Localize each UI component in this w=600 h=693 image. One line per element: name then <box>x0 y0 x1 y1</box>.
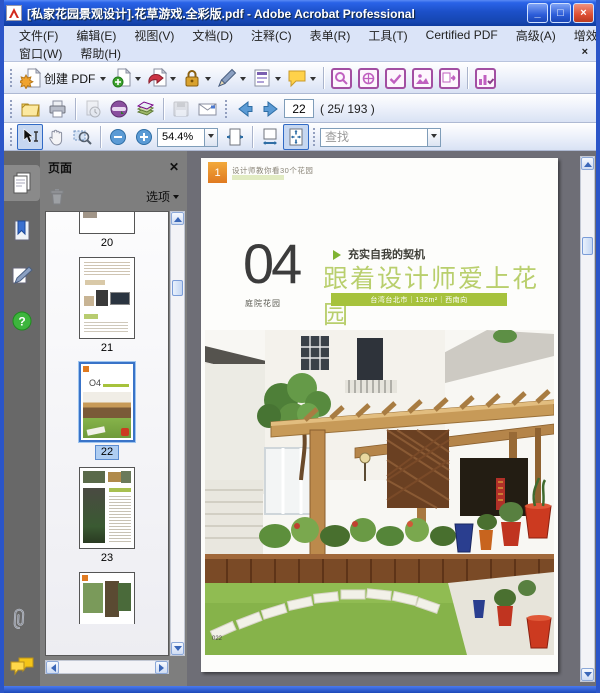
acrobat-app-icon <box>6 5 22 21</box>
chevron-down-icon <box>205 77 211 84</box>
chevron-down-icon <box>310 77 316 84</box>
previous-page-button[interactable] <box>232 96 258 122</box>
menu-help[interactable]: 帮助(H) <box>71 44 130 63</box>
form-icon <box>252 68 272 88</box>
chevron-down-icon <box>170 77 176 84</box>
envelope-icon <box>197 99 218 119</box>
minimize-button[interactable]: _ <box>527 3 548 23</box>
paper-stack-icon <box>135 99 156 119</box>
scroll-right-button[interactable] <box>155 661 168 674</box>
arrow-right-icon <box>159 664 168 672</box>
create-pdf-label: 创建 PDF <box>44 70 95 87</box>
svg-text:?: ? <box>18 315 25 329</box>
arrow-left-icon <box>235 99 255 119</box>
scroll-down-button[interactable] <box>581 668 594 681</box>
file-toolbar: ( 25/ 193 ) <box>4 94 596 123</box>
menu-view[interactable]: 视图(V) <box>125 26 183 45</box>
menubar: 文件(F) 编辑(E) 视图(V) 文档(D) 注释(C) 表单(R) 工具(T… <box>4 26 596 62</box>
fit-width-button[interactable] <box>222 124 248 150</box>
review-comment-button[interactable] <box>284 65 319 91</box>
hand-icon <box>46 127 66 147</box>
arrow-up-icon <box>174 213 182 222</box>
page-count-label: ( 25/ 193 ) <box>320 102 375 116</box>
pages-panel: 页面 ✕ 选项 20 <box>40 151 187 686</box>
chart-check-icon <box>475 68 496 89</box>
fit-page-icon <box>286 127 306 147</box>
globe-doc-icon <box>358 68 379 89</box>
fit-page-button[interactable] <box>283 124 309 150</box>
create-pdf-icon <box>20 67 42 89</box>
bookmarks-tab[interactable] <box>4 213 40 249</box>
toolbar-grip[interactable] <box>312 127 317 147</box>
signature-pen-icon <box>10 263 34 287</box>
open-folder-icon <box>20 99 41 119</box>
thumbnail-label: 23 <box>96 552 118 565</box>
next-page-button[interactable] <box>258 96 284 122</box>
thumbnail-page-21[interactable] <box>79 257 135 339</box>
pdf-page: 1 设计师教你看30个花园 04 庭院花园 充实自我的契机 跟着设计师爱上花园 … <box>201 158 558 672</box>
zoom-level-dropdown[interactable] <box>205 128 218 147</box>
view-toolbar: 54.4% <box>4 123 596 151</box>
menu-advanced[interactable]: 高级(A) <box>507 26 565 45</box>
toolbar-separator <box>252 126 253 148</box>
chapter-number: 04 <box>243 236 299 292</box>
menu-comments[interactable]: 注释(C) <box>242 26 301 45</box>
maximize-button[interactable]: □ <box>550 3 571 23</box>
speech-bubble-icon <box>287 68 307 88</box>
clock-doc-icon <box>83 99 103 119</box>
scroll-up-button[interactable] <box>581 157 594 170</box>
certified-pdf-button[interactable] <box>472 65 499 91</box>
pitstop-process-button[interactable] <box>436 65 463 91</box>
arrow-down-icon <box>584 672 592 681</box>
pitstop-action-button[interactable] <box>106 96 132 122</box>
zoom-in-button[interactable] <box>131 124 157 150</box>
arrow-left-icon <box>47 664 56 672</box>
trash-icon[interactable] <box>48 187 66 205</box>
zoom-tool-button[interactable] <box>69 124 96 150</box>
thumbnail-page-20[interactable] <box>79 212 135 234</box>
find-dropdown[interactable] <box>428 128 441 147</box>
menu-plugins[interactable]: 增效工具(P) <box>565 26 600 45</box>
forms-button[interactable] <box>249 65 284 91</box>
arrow-right-icon <box>261 99 281 119</box>
toolbar-close-icon[interactable]: × <box>582 46 588 58</box>
toolbar-separator <box>100 126 101 148</box>
acrobat-window: [私家花园景观设计].花草游戏.全彩版.pdf - Adobe Acrobat … <box>0 0 600 693</box>
thumbnail-label: 20 <box>96 237 118 250</box>
pages-icon <box>11 171 33 195</box>
thumbnail-list: 20 21 O4 <box>45 211 169 656</box>
organizer-button[interactable] <box>80 96 106 122</box>
chevron-down-icon <box>208 134 214 141</box>
document-vertical-scrollbar[interactable] <box>580 156 595 682</box>
toolbar-separator <box>75 98 76 120</box>
toolbar-separator <box>163 98 164 120</box>
toolbar-grip[interactable] <box>9 99 14 119</box>
email-button[interactable] <box>194 96 221 122</box>
comment-bubbles-icon <box>9 656 35 678</box>
toolbar-grip[interactable] <box>224 99 229 119</box>
page-header-subline <box>232 175 284 180</box>
sign-button[interactable] <box>214 65 249 91</box>
menu-window[interactable]: 窗口(W) <box>10 44 71 63</box>
scrollbar-thumb[interactable] <box>582 237 593 255</box>
fit-visible-button[interactable] <box>257 124 283 150</box>
export-icon <box>147 68 167 88</box>
close-button[interactable]: × <box>573 3 594 23</box>
find-input[interactable] <box>320 128 428 147</box>
window-title: [私家花园景观设计].花草游戏.全彩版.pdf - Adobe Acrobat … <box>27 5 525 22</box>
preflight-inspect-button[interactable] <box>328 65 355 91</box>
printer-icon <box>47 99 68 119</box>
fit-visible-icon <box>260 127 280 147</box>
menu-tools[interactable]: 工具(T) <box>359 26 416 45</box>
chevron-down-icon <box>173 195 179 202</box>
panel-options-label: 选项 <box>146 188 170 205</box>
toolbar-grip[interactable] <box>9 68 14 88</box>
chevron-down-icon <box>135 77 141 84</box>
menu-forms[interactable]: 表单(R) <box>301 26 360 45</box>
zoom-out-button[interactable] <box>105 124 131 150</box>
garden-info-bar: 台湾台北市｜132m²｜西南向 <box>331 293 507 306</box>
thumbnail-page-24[interactable] <box>79 572 135 624</box>
pitstop-image-button[interactable] <box>409 65 436 91</box>
tasks-toolbar: 创建 PDF <box>4 62 596 94</box>
arrow-down-icon <box>174 646 182 655</box>
pen-icon <box>217 68 237 88</box>
page-number-input[interactable] <box>284 99 314 118</box>
scroll-up-button[interactable] <box>171 212 184 225</box>
comments-tab[interactable] <box>4 649 40 685</box>
chevron-down-icon <box>100 77 106 84</box>
checkmark-doc-icon <box>385 68 406 89</box>
thumbnail-label-selected: 22 <box>95 445 119 460</box>
menu-file[interactable]: 文件(F) <box>10 26 67 45</box>
garden-photo <box>205 330 554 655</box>
titlebar: [私家花园景观设计].花草游戏.全彩版.pdf - Adobe Acrobat … <box>0 0 600 26</box>
fit-width-icon <box>225 127 245 147</box>
scrollbar-thumb[interactable] <box>172 280 183 296</box>
help-icon: ? <box>11 310 33 332</box>
hand-tool-button[interactable] <box>43 124 69 150</box>
zoom-level-value[interactable]: 54.4% <box>157 128 205 147</box>
chevron-down-icon <box>431 134 437 141</box>
arrow-up-icon <box>584 158 592 167</box>
scroll-left-button[interactable] <box>46 661 59 674</box>
plus-circle-icon <box>135 128 153 146</box>
combine-files-icon <box>112 68 132 88</box>
export-button[interactable] <box>144 65 179 91</box>
signatures-tab[interactable] <box>4 257 40 293</box>
scan-stack-button[interactable] <box>132 96 159 122</box>
secure-button[interactable] <box>179 65 214 91</box>
minus-circle-icon <box>109 128 127 146</box>
open-button[interactable] <box>17 96 44 122</box>
toolbar-separator <box>467 67 468 89</box>
select-cursor-icon <box>20 127 40 147</box>
create-pdf-button[interactable]: 创建 PDF <box>17 65 109 91</box>
scroll-down-button[interactable] <box>171 642 184 655</box>
menu-edit[interactable]: 编辑(E) <box>67 26 125 45</box>
purple-sphere-icon <box>109 99 129 119</box>
toolbar-grip[interactable] <box>9 127 14 147</box>
picture-doc-icon <box>412 68 433 89</box>
save-button[interactable] <box>168 96 194 122</box>
pages-tab[interactable] <box>4 165 40 201</box>
panel-horizontal-scrollbar[interactable] <box>45 660 169 674</box>
magnifier-doc-icon <box>331 68 352 89</box>
thumbnail-page-22[interactable]: O4 <box>79 362 135 442</box>
menu-document[interactable]: 文档(D) <box>183 26 242 45</box>
print-button[interactable] <box>44 96 71 122</box>
thumbnail-label: 21 <box>96 342 118 355</box>
panel-options-button[interactable]: 选项 <box>146 188 179 205</box>
chevron-down-icon <box>275 77 281 84</box>
zoom-marquee-icon <box>72 127 93 147</box>
thumbnail-page-23[interactable] <box>79 467 135 549</box>
window-bottom-border <box>0 686 600 693</box>
pages-panel-title: 页面 <box>48 159 72 176</box>
panel-vertical-scrollbar[interactable] <box>170 211 185 656</box>
navigation-tabstrip: ? <box>4 151 40 686</box>
page-folio-number: 022 <box>212 636 222 642</box>
menu-certified-pdf[interactable]: Certified PDF <box>417 27 507 43</box>
select-tool-button[interactable] <box>17 124 43 150</box>
main-area: ? 页面 ✕ <box>4 151 596 686</box>
attachments-tab[interactable] <box>4 601 40 637</box>
howto-help-button[interactable]: ? <box>4 303 40 339</box>
toolbar-separator <box>323 67 324 89</box>
panel-close-icon[interactable]: ✕ <box>169 160 179 174</box>
combine-files-button[interactable] <box>109 65 144 91</box>
pitstop-globe-button[interactable] <box>355 65 382 91</box>
paperclip-icon <box>10 606 34 632</box>
bookmark-icon <box>11 219 33 243</box>
chapter-part-badge: 1 <box>208 162 227 183</box>
chevron-down-icon <box>240 77 246 84</box>
pitstop-check-button[interactable] <box>382 65 409 91</box>
docs-arrow-icon <box>439 68 460 89</box>
lock-icon <box>182 68 202 88</box>
document-area: 1 设计师教你看30个花园 04 庭院花园 充实自我的契机 跟着设计师爱上花园 … <box>187 151 596 686</box>
chapter-category: 庭院花园 <box>245 298 281 309</box>
floppy-icon <box>171 99 191 119</box>
